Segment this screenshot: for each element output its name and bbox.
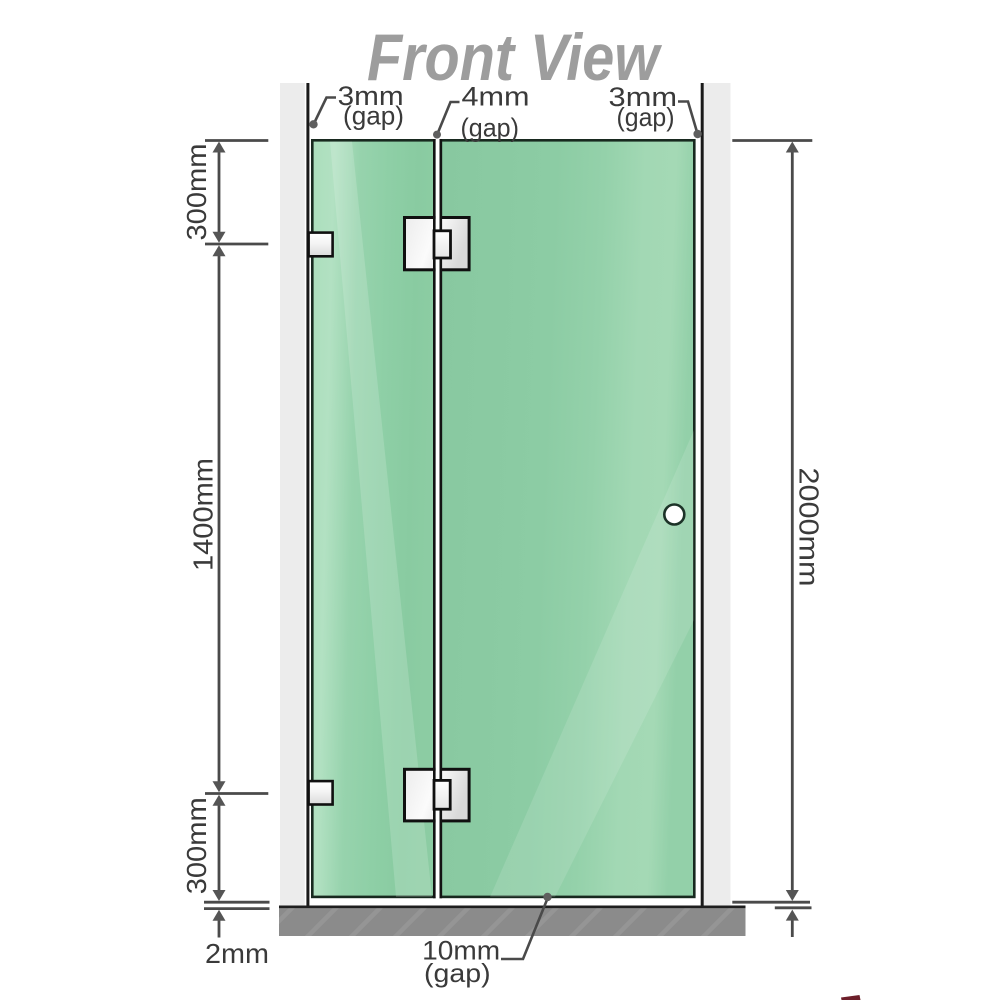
svg-text:(gap): (gap): [617, 102, 675, 132]
svg-text:300mm: 300mm: [181, 144, 212, 241]
svg-text:4mm: 4mm: [462, 82, 530, 112]
svg-text:2000mm: 2000mm: [793, 468, 824, 587]
svg-text:(gap): (gap): [343, 101, 404, 131]
svg-text:(gap): (gap): [460, 113, 519, 143]
svg-text:2mm: 2mm: [205, 938, 269, 969]
svg-text:1400mm: 1400mm: [187, 458, 218, 571]
svg-text:300mm: 300mm: [181, 797, 212, 894]
svg-text:(gap): (gap): [424, 958, 491, 988]
